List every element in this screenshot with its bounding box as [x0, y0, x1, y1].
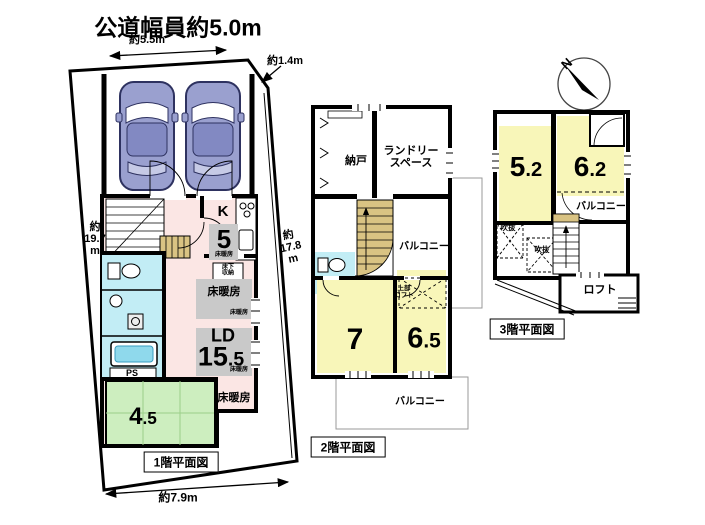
floor-heating-bold-label: 床暖房	[218, 393, 251, 405]
washing-machine-icon	[128, 314, 143, 329]
room65-size: 6.5	[407, 323, 441, 354]
ld-size-int: 15	[198, 341, 228, 371]
kitchen-size: 5	[217, 225, 231, 253]
kitchen-floor-heating-label: 床暖房	[215, 252, 233, 258]
balcony-side	[450, 178, 482, 308]
sink-icon	[239, 230, 253, 250]
room52-int: 5	[510, 151, 526, 182]
floor-heating-label: 床暖房	[208, 287, 241, 299]
dim-bottom-label: 約7.9m	[158, 492, 197, 505]
storage-room-label: 納戸	[345, 156, 367, 168]
tatami-room	[106, 381, 216, 445]
floor1-building	[102, 74, 260, 446]
floor3-building	[492, 58, 638, 315]
closet	[590, 114, 624, 146]
bathtub-icon	[111, 342, 157, 366]
dim-top-label: 約5.5m	[129, 35, 165, 47]
room52-dec: .2	[525, 159, 542, 181]
balcony-label: バルコニー	[399, 243, 449, 254]
site-title: 公道幅員約5.0m	[94, 16, 261, 41]
car-icon	[182, 82, 244, 190]
balcony-label: バルコニー	[395, 398, 445, 409]
upper-loft-label: 上部 ロフト	[394, 285, 414, 299]
kitchen-counter	[236, 198, 256, 260]
underfloor-storage-label: 床下 収納	[222, 265, 234, 278]
room62-int: 6	[574, 151, 590, 182]
dim-corner-label: 約1.4m	[267, 56, 303, 68]
kitchen-label: K	[218, 204, 229, 220]
floor2-caption: 2階平面図	[311, 437, 386, 458]
room52-size: 5.2	[510, 152, 542, 182]
void-label: 吹抜	[501, 224, 516, 232]
tatami-size-dec: .5	[142, 408, 156, 428]
loft-label: ロフト	[584, 285, 617, 297]
room62-dec: .2	[589, 159, 606, 181]
floorplan-page: 公道幅員約5.0m 約5.5m 約1.4m 約 19.7 m 約 17.8 m …	[0, 0, 705, 525]
room65-int: 6	[407, 322, 423, 354]
room7-size: 7	[347, 324, 364, 356]
room65-dec: .5	[423, 329, 440, 352]
ps-label: PS	[126, 369, 138, 379]
floor1-caption: 1階平面図	[144, 452, 219, 473]
toilet-icon	[318, 258, 345, 272]
window-icon	[576, 272, 604, 278]
tatami-size: 4.5	[129, 404, 157, 430]
balcony-label: バルコニー	[576, 203, 626, 214]
staircase-f2	[355, 200, 393, 276]
staircase-f3	[553, 214, 579, 274]
washbasin-icon	[110, 295, 122, 307]
laundry-space-label: ランドリー スペース	[384, 146, 439, 170]
floor-heating-small-label: 床暖房	[230, 310, 248, 316]
floor-heating-small-label: 床暖房	[230, 367, 248, 373]
dim-left-label: 約 19.7 m	[84, 222, 105, 258]
room62-size: 6.2	[574, 152, 606, 182]
void-label: 吹抜	[535, 246, 550, 254]
tatami-size-int: 4	[129, 403, 142, 430]
floor3-caption: 3階平面図	[490, 319, 565, 340]
car-icon	[116, 82, 178, 190]
